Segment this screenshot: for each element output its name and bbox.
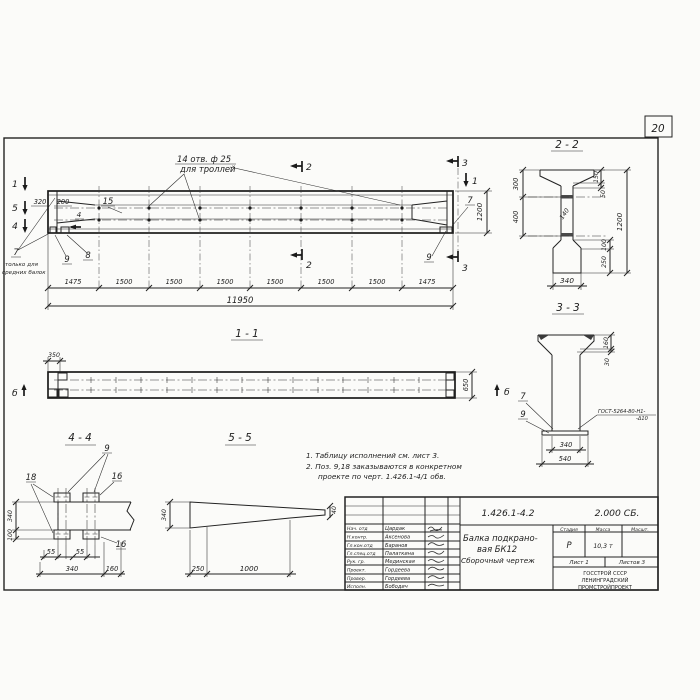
sheet-label: Лист 1 [568,560,589,566]
sig-name: Мединская [385,559,415,565]
svg-text:140: 140 [559,207,572,221]
svg-text:160: 160 [603,337,610,349]
sig-role: Гл.кон.отд [347,543,373,549]
svg-text:320: 320 [34,198,47,206]
section-3-3: 3 - 3 160 30 7 9 ГОСТ-5264-80-Н1- -Δ10 3… [494,302,656,467]
svg-text:150: 150 [593,171,600,183]
svg-text:50: 50 [600,190,607,198]
svg-text:1500: 1500 [369,278,386,286]
svg-text:2: 2 [306,162,312,173]
svg-text:40: 40 [331,506,338,514]
svg-text:400: 400 [512,211,520,224]
drawing-title-line3: Сборочный чертеж [461,556,535,565]
section-2-2-dims: 300 400 150 50 1200 100 250 140 340 [512,167,631,290]
sig-role: Провер. [347,576,366,582]
svg-text:340: 340 [66,565,79,573]
dim-1200: 1200 [475,202,484,221]
svg-text:15: 15 [103,196,114,206]
signature-table: Нач. отд Цардак Н.контр. Аксенова Гл.кон… [347,526,444,590]
sig-role: Нач. отд [347,526,368,532]
dim-total: 11950 [227,295,254,305]
svg-text:300: 300 [512,178,520,191]
svg-text:5: 5 [12,203,18,214]
svg-text:4: 4 [12,221,18,232]
section-cut-3: 3 3 [446,156,468,274]
section-marker-1-right: 1 [463,173,477,187]
view-b-marker-right: б [504,387,510,398]
note-line-2: 2. Поз. 9,18 заказываются в конкретном [306,462,462,471]
section-5-5-title: 5 - 5 [228,432,252,444]
svg-text:1475: 1475 [419,278,436,286]
doc-number: 1.426.1-4.2 [482,508,535,519]
hole-note-line1: 14 отв. ф 25 [177,154,231,164]
section-2-2-title: 2 - 2 [555,139,579,151]
svg-text:100: 100 [7,529,14,541]
elevation-dim-chain: 1475 1500 1500 1500 1500 1500 1500 1475 … [45,233,456,310]
hole-note-line2: для троллей [179,164,236,174]
sheet-number: 20 [651,123,665,135]
svg-text:9: 9 [426,252,431,262]
svg-text:1500: 1500 [267,278,284,286]
stage-value: Р [566,540,572,550]
section-3-3-dims: 160 30 7 9 ГОСТ-5264-80-Н1- -Δ10 340 540… [494,332,656,467]
svg-text:3: 3 [462,263,468,274]
section-marker-5-left: 5 [12,201,28,215]
sig-role: Проект. [347,568,366,574]
svg-text:9: 9 [64,254,69,264]
svg-text:16: 16 [112,471,123,481]
section-1-1-dims: 350 650 б [12,352,477,401]
svg-text:340: 340 [7,510,14,522]
svg-text:1000: 1000 [240,564,259,573]
svg-text:200: 200 [57,198,70,206]
sig-role: Рук. гр. [347,559,365,565]
drawing-canvas: 20 14 отв. ф 25 для троллей 1 [0,0,700,700]
view-b-marker-left: б [12,388,18,399]
svg-text:средних балок: средних балок [2,270,46,276]
mass-value: 10,3 т [593,543,613,550]
svg-text:9: 9 [520,409,525,419]
svg-text:7: 7 [520,391,526,401]
section-marker-4-left: 4 [12,219,28,233]
svg-text:7: 7 [13,247,19,257]
section-4-4: 4 - 4 9 18 16 16 340 100 55 55 [7,432,134,577]
drawing-title-line2: вая БК12 [477,544,517,554]
svg-text:55: 55 [47,548,55,556]
svg-text:160: 160 [106,565,119,573]
blueprint-sheet: 20 14 отв. ф 25 для троллей 1 [0,0,700,700]
svg-text:4: 4 [77,210,82,219]
section-4-4-title: 4 - 4 [68,432,92,444]
org-line1: ГОССТРОЙ СССР [583,570,627,577]
svg-text:9: 9 [104,443,109,453]
sig-role: Исполн. [347,584,366,590]
elevation-view: 14 отв. ф 25 для троллей 1 5 4 1 2 2 [2,154,492,310]
sheet-frame: 20 [4,116,672,590]
svg-text:540: 540 [559,455,572,463]
sig-name: Гордеева [385,576,410,582]
svg-text:350: 350 [48,352,60,359]
svg-text:1500: 1500 [166,278,183,286]
svg-text:1500: 1500 [318,278,335,286]
svg-text:8: 8 [85,250,90,260]
svg-text:только для: только для [5,262,39,268]
sheets-label: Листов 3 [618,560,646,566]
svg-text:1: 1 [472,176,478,187]
title-block: 1.426.1-4.2 2.000 СБ. Балка подкрано- ва… [345,497,658,591]
svg-text:1: 1 [12,179,18,190]
svg-text:340: 340 [560,441,573,449]
svg-text:340: 340 [161,509,168,521]
svg-text:340: 340 [560,276,574,285]
svg-text:250: 250 [192,565,205,573]
svg-text:1500: 1500 [116,278,133,286]
sig-name: Бободич [385,584,408,590]
section-3-3-title: 3 - 3 [556,302,580,314]
doc-code: 2.000 СБ. [595,508,640,519]
svg-text:650: 650 [462,379,470,392]
svg-text:55: 55 [76,548,84,556]
sig-name: Баранов [385,543,407,549]
sig-name: Палаткина [385,551,414,557]
note-line-3: проекте по черт. 1.426.1-4/1 обв. [318,472,446,481]
col-stage: Стадия [560,527,578,533]
svg-text:250: 250 [601,256,608,268]
section-marker-1-left: 1 [12,177,28,191]
sig-role: Н.контр. [347,535,368,541]
weld-note-line1: ГОСТ-5264-80-Н1- [598,409,646,415]
note-line-1: 1. Таблицу исполнений см. лист 3. [306,451,439,460]
drawing-title-line1: Балка подкрано- [463,533,538,543]
svg-text:30: 30 [604,358,611,366]
sig-name: Цардак [385,526,406,532]
org-line3: ПРОМСТРОЙПРОЕКТ [578,584,633,591]
svg-text:1500: 1500 [217,278,234,286]
svg-text:1200: 1200 [615,212,624,231]
svg-text:100: 100 [601,239,608,251]
weld-note-line2: -Δ10 [636,416,648,422]
sig-name: Аксенова [384,535,410,541]
section-1-1-title: 1 - 1 [235,328,259,340]
notes: 1. Таблицу исполнений см. лист 3. 2. Поз… [306,451,462,481]
org-line2: ЛЕНИНГРАДСКИЙ [582,577,629,584]
col-mass: Масса [596,527,611,533]
section-2-2: 2 - 2 300 400 150 50 1200 100 250 140 34… [512,139,631,290]
svg-text:2: 2 [306,260,312,271]
col-scale: Масшт. [631,527,649,533]
section-4-4-labels: 9 18 16 16 [26,443,127,549]
trolley-holes [97,206,403,221]
sig-role: Гл.спец.отд [347,551,376,557]
sig-name: Гордеева [385,568,410,574]
section-5-5-dims: 340 40 250 1000 [161,499,338,577]
section-1-1: 1 - 1 350 650 б [12,328,477,401]
svg-text:3: 3 [462,158,468,169]
svg-text:18: 18 [26,472,37,482]
svg-text:7: 7 [467,195,473,205]
svg-text:1475: 1475 [65,278,82,286]
